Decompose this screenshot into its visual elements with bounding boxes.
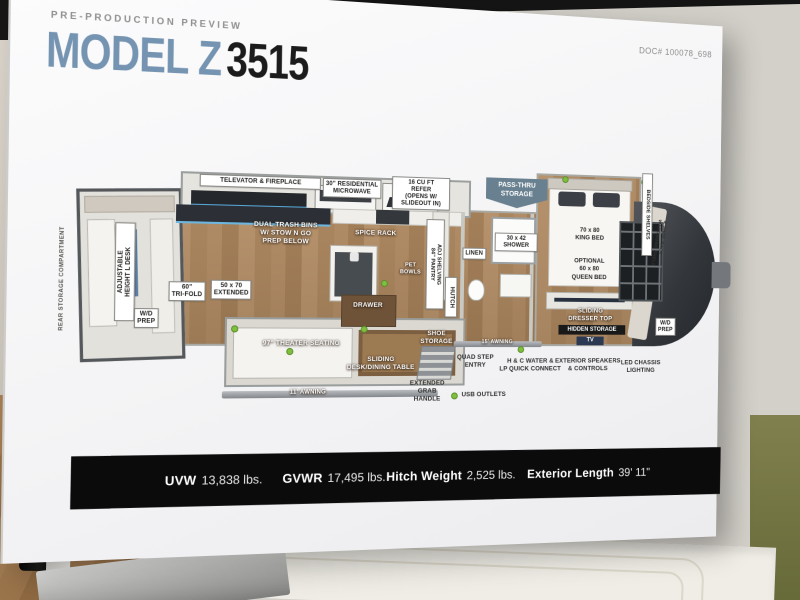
- spec-gvwr-label: GVWR: [282, 471, 322, 486]
- page-title: MODEL Z3515: [46, 20, 309, 92]
- label-extended-sofa: 50 x 70 EXTENDED: [211, 280, 252, 300]
- label-shoe-storage: SHOE STORAGE: [411, 330, 461, 346]
- floorplan-poster: PRE-PRODUCTION PREVIEW MODEL Z3515 DOC# …: [3, 0, 723, 564]
- label-pet-bowls: PET BOWLS: [393, 262, 428, 276]
- tv-unit: [554, 298, 624, 303]
- usb-outlet-dot: [518, 346, 525, 353]
- usb-outlet-dot: [381, 280, 388, 287]
- label-wd-prep-front: W/D PREP: [655, 318, 675, 336]
- spec-length-value: 39' 11": [618, 465, 650, 479]
- label-hidden-storage: HIDDEN STORAGE: [558, 325, 625, 335]
- label-adjustable-desk: ADJUSTABLE HEIGHT L DESK: [114, 222, 136, 321]
- spec-uvw-value: 13,838 lbs.: [201, 472, 262, 488]
- hitch-pin-box: [711, 262, 730, 288]
- pillow: [558, 191, 585, 206]
- spec-bar: UVW13,838 lbs. GVWR17,495 lbs. Hitch Wei…: [70, 447, 721, 509]
- l-desk: [87, 219, 118, 327]
- label-rear-storage: REAR STORAGE COMPARTMENT: [59, 217, 67, 340]
- label-king-bed: 70 x 80 KING BED: [560, 226, 620, 244]
- label-tri-fold: 60" TRI-FOLD: [168, 281, 205, 301]
- label-spice-rack: SPICE RACK: [346, 229, 405, 238]
- model-name: MODEL Z: [46, 21, 222, 86]
- rv-floorplan: REAR STORAGE COMPARTMENT ADJUSTABLE HEIG…: [61, 148, 708, 414]
- label-wd-prep-rear: W/D PREP: [134, 308, 159, 328]
- range-cooktop: [376, 210, 409, 225]
- label-sliding-dresser: SLIDING DRESSER TOP: [557, 307, 624, 322]
- usb-outlet-dot: [231, 325, 238, 332]
- usb-outlet-dot: [562, 176, 568, 183]
- rear-shelf: [84, 195, 175, 212]
- kitchen-island: [329, 245, 377, 302]
- usb-outlets-legend: USB OUTLETS: [451, 391, 506, 399]
- label-pantry: 84" PANTRY ADJ SHELVING: [425, 219, 444, 309]
- label-theater-seating: 97" THEATER SEATING: [243, 340, 358, 348]
- pillow: [593, 193, 620, 208]
- label-hutch: HUTCH: [445, 277, 458, 318]
- label-tv: TV: [576, 337, 603, 346]
- label-microwave: 30" RESIDENTIAL MICROWAVE: [323, 178, 381, 199]
- spec-exterior-length: Exterior Length39' 11": [527, 463, 650, 483]
- spec-length-label: Exterior Length: [527, 466, 614, 481]
- label-dual-trash: DUAL TRASH BINS W/ STOW N GO PREP BELOW: [243, 220, 329, 246]
- spec-hitch-weight: Hitch Weight2,525 lbs.: [386, 466, 516, 486]
- label-queen-bed: OPTIONAL 60 x 80 QUEEN BED: [559, 257, 619, 282]
- doc-number: DOC# 100078_698: [639, 46, 712, 60]
- sink: [349, 252, 358, 261]
- spec-hitch-value: 2,525 lbs.: [467, 468, 516, 483]
- spec-uvw: UVW13,838 lbs.: [165, 470, 263, 490]
- toilet: [468, 279, 485, 301]
- label-usb-outlets: USB OUTLETS: [462, 391, 506, 399]
- usb-legend-dot: [451, 392, 458, 399]
- spec-hitch-label: Hitch Weight: [386, 469, 462, 484]
- spec-gvwr: GVWR17,495 lbs.: [282, 468, 386, 488]
- label-chassis-lighting: LED CHASSIS LIGHTING: [612, 359, 669, 375]
- label-refer: 16 CU FT REFER (OPENS W/ SLIDEOUT IN): [392, 176, 450, 211]
- model-number: 3515: [226, 31, 309, 90]
- label-awning-rear: 11' AWNING: [269, 389, 346, 397]
- bath-vanity: [500, 274, 532, 298]
- label-quad-step: QUAD STEP ENTRY: [451, 354, 498, 370]
- label-shower: 30 x 42 SHOWER: [495, 232, 538, 252]
- label-awning-front: 15' AWNING: [463, 339, 531, 346]
- label-drawer: DRAWER: [341, 302, 394, 310]
- photo-scene: PRE-PRODUCTION PREVIEW MODEL Z3515 DOC# …: [0, 0, 800, 600]
- spec-uvw-label: UVW: [165, 473, 197, 488]
- label-grab-handle: EXTENDED GRAB HANDLE: [403, 380, 451, 405]
- label-linen: LINEN: [462, 248, 485, 260]
- island-countertop: [334, 252, 372, 297]
- drawer-cabinet: [341, 295, 397, 328]
- spec-gvwr-value: 17,495 lbs.: [327, 470, 385, 485]
- label-sliding-desk: SLIDING DESK/DINING TABLE: [326, 356, 434, 372]
